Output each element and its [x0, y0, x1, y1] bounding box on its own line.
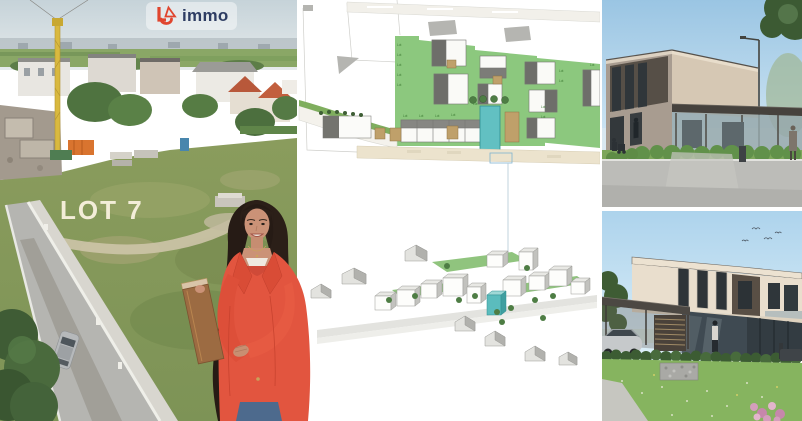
render-top-panel	[602, 0, 802, 207]
construction-site	[0, 105, 62, 180]
svg-text:Lot: Lot	[397, 43, 402, 47]
carport-canopy	[672, 104, 802, 152]
site-plan-panel: Lot Lot Lot Lot Lot Lot Lot Lot Lot Lot …	[297, 0, 600, 421]
agent-figure	[178, 196, 332, 421]
render-bottom-graphic	[602, 211, 802, 421]
svg-text:Lot: Lot	[590, 63, 595, 67]
svg-text:Lot: Lot	[473, 102, 478, 106]
svg-text:Lot: Lot	[397, 63, 402, 67]
render-top-graphic	[602, 0, 802, 207]
svg-text:Lot: Lot	[451, 113, 456, 117]
svg-text:Lot: Lot	[541, 105, 546, 109]
blazer-button	[256, 377, 260, 381]
brand-logo: immo	[146, 2, 237, 30]
road	[602, 152, 802, 207]
logo-wordmark: immo	[182, 6, 229, 26]
collage-root: LOT 7	[0, 0, 802, 421]
jeans	[236, 402, 282, 421]
agent-photo	[178, 196, 332, 421]
svg-text:Lot: Lot	[397, 83, 402, 87]
highlighted-lot	[480, 106, 500, 154]
svg-text:Lot: Lot	[559, 79, 564, 83]
dark-structure	[780, 349, 802, 361]
svg-text:Lot: Lot	[397, 53, 402, 57]
person-silhouette	[634, 117, 639, 138]
trash-bin	[739, 146, 746, 162]
top-road	[347, 2, 600, 22]
render-bottom-panel	[602, 211, 802, 421]
svg-text:Lot: Lot	[435, 114, 440, 118]
lot7-label: LOT 7	[60, 195, 144, 225]
svg-text:Lot: Lot	[559, 69, 564, 73]
site-plan-graphic: Lot Lot Lot Lot Lot Lot Lot Lot Lot Lot …	[297, 0, 600, 421]
plan-3d-axon	[311, 245, 597, 365]
svg-text:Lot: Lot	[541, 115, 546, 119]
la-smile-logo-icon	[154, 4, 178, 28]
gabion-basket	[660, 363, 698, 380]
plan-2d: Lot Lot Lot Lot Lot Lot Lot Lot Lot Lot …	[299, 0, 600, 253]
svg-text:Lot: Lot	[419, 114, 424, 118]
svg-text:Lot: Lot	[403, 114, 408, 118]
bottom-road	[357, 146, 600, 164]
left-hand	[195, 285, 205, 293]
svg-text:Lot: Lot	[397, 73, 402, 77]
